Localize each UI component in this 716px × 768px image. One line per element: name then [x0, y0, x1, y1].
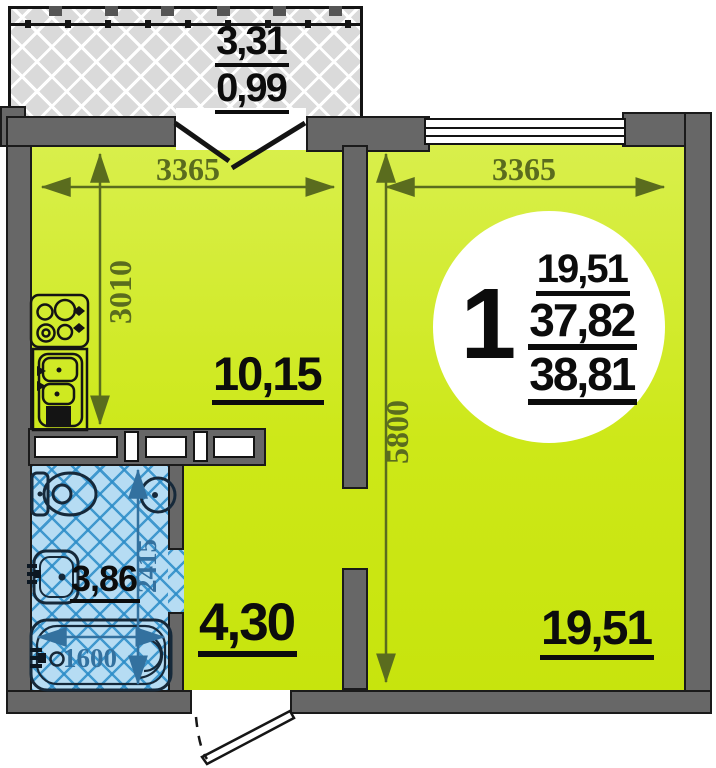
stamp-area-no-balcony: 37,82	[528, 299, 637, 350]
kitchen-depth-dim: 3010	[102, 260, 138, 324]
room-width-dim: 3365	[492, 151, 556, 187]
stamp-living-area: 19,51	[536, 251, 630, 296]
balcony-area-total: 3,31	[215, 22, 289, 67]
apartment-summary-stamp: 1 19,51 37,82 38,81	[433, 211, 665, 443]
corner-basin-icon	[141, 478, 175, 512]
bathroom-area-label: 3,86	[70, 562, 140, 603]
entry-door-swing-icon	[196, 711, 294, 764]
living-room-area-label: 19,51	[540, 606, 654, 660]
room-depth-dim: 5800	[379, 400, 415, 464]
kitchen-width-dim: 3365	[156, 151, 220, 187]
bathtub-length-dim: 1600	[63, 643, 117, 673]
rooms-count: 1	[461, 274, 517, 374]
balcony-area-reduced: 0,99	[215, 69, 289, 114]
toilet-icon	[32, 473, 96, 515]
kitchen-sink-icon	[33, 349, 87, 430]
floor-plan: 3,31 0,99	[0, 0, 716, 768]
stamp-total-area: 38,81	[528, 353, 637, 404]
balcony-labels: 3,31 0,99	[182, 22, 322, 114]
hallway-area-label: 4,30	[198, 598, 297, 657]
stove-icon	[31, 295, 88, 347]
kitchen-area-label: 10,15	[212, 352, 324, 405]
